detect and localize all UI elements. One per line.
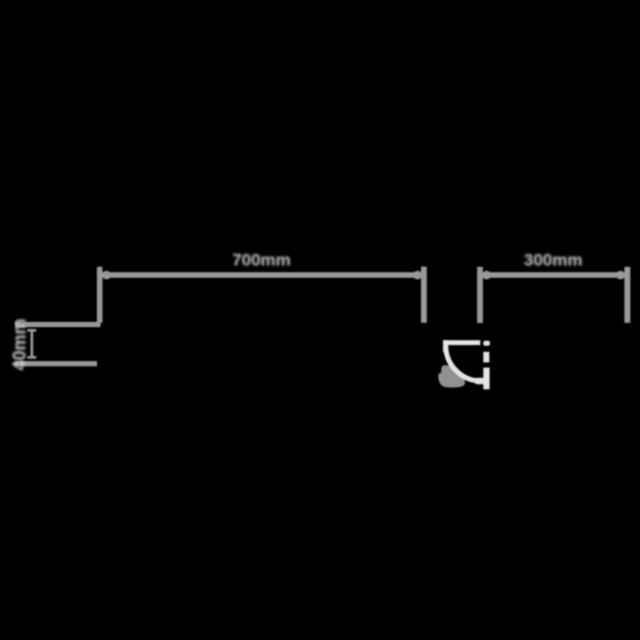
svg-text:700mm: 700mm xyxy=(232,251,291,270)
svg-text:300mm: 300mm xyxy=(524,251,583,270)
svg-text:40mm: 40mm xyxy=(10,318,30,370)
